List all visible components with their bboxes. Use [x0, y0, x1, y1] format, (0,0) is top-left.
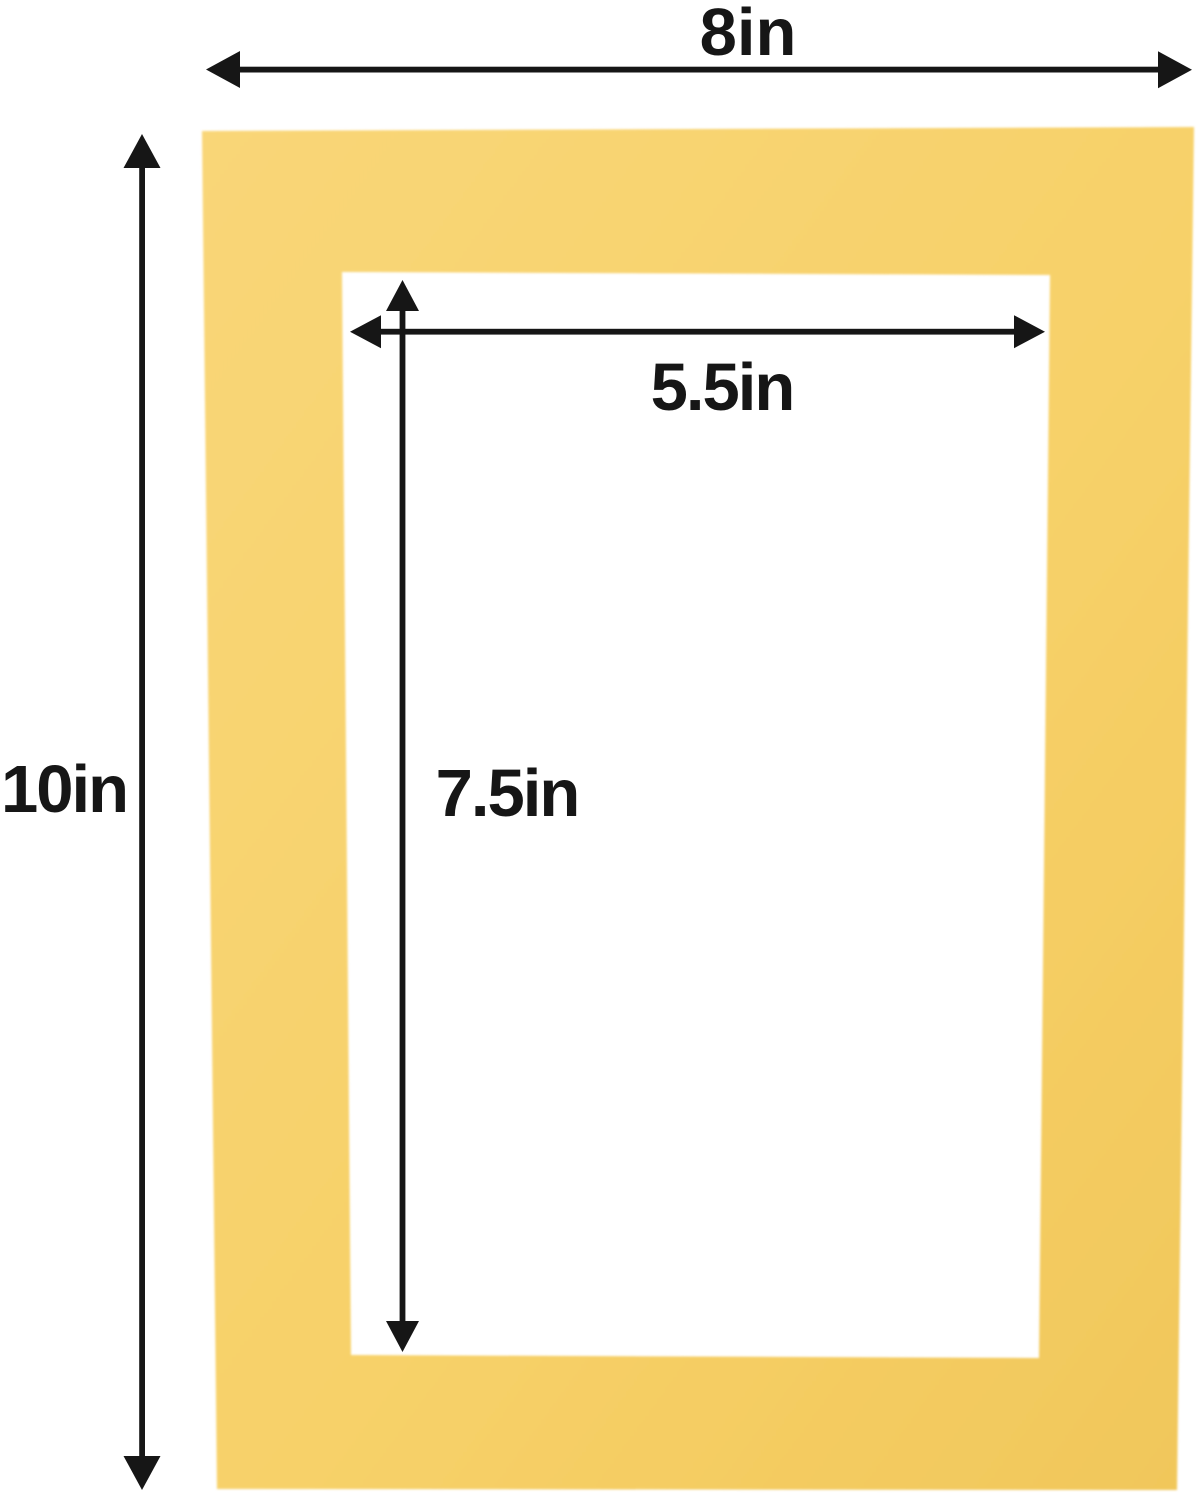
svg-text:8in: 8in [700, 0, 797, 70]
svg-text:5.5in: 5.5in [651, 350, 794, 425]
svg-text:10in: 10in [1, 752, 127, 827]
svg-text:7.5in: 7.5in [436, 756, 579, 831]
